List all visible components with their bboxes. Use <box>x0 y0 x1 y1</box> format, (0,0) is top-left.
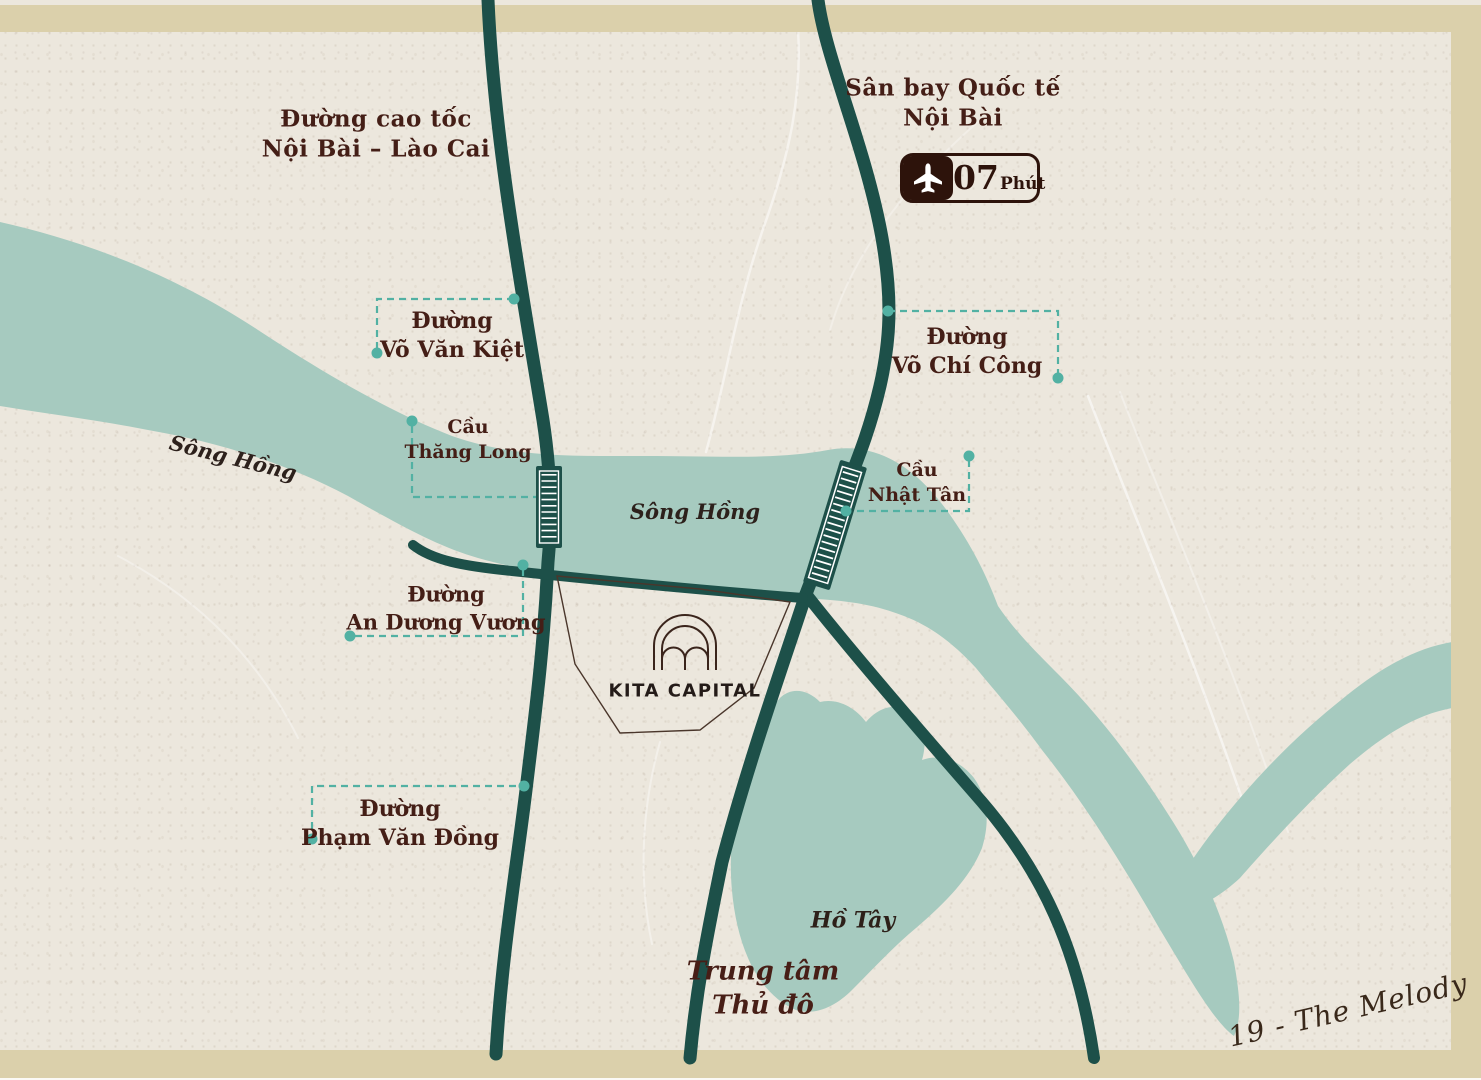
river-label-center: Sông Hồng <box>630 498 760 526</box>
bridge-label-nhat-tan: Cầu Nhật Tân <box>868 458 966 508</box>
kita-capital-label: KITA CAPITAL <box>608 681 761 702</box>
city-center-line1: Trung tâm <box>687 955 840 989</box>
nhat-tan-line1: Cầu <box>868 458 966 483</box>
road-label-pham-van-dong: Đường Phạm Văn Đồng <box>301 795 499 853</box>
kita-capital-logo-icon <box>654 615 716 670</box>
city-center-line2: Thủ đô <box>687 989 840 1023</box>
map-graphics <box>0 0 1481 1080</box>
travel-time-text: 07 Phút <box>953 161 1045 196</box>
kita-plot-outline <box>557 576 790 733</box>
vo-chi-cong-line2: Võ Chí Công <box>892 352 1042 381</box>
road-label-vo-chi-cong: Đường Võ Chí Công <box>892 323 1042 381</box>
road-label-an-duong-vuong: Đường An Dương Vương <box>346 580 545 635</box>
map-canvas: Đường cao tốc Nội Bài – Lào Cai Sân bay … <box>0 0 1481 1080</box>
airport-label-line2: Nội Bài <box>845 104 1060 134</box>
bridge-thang-long-icon <box>536 466 562 548</box>
expressway-label: Đường cao tốc Nội Bài – Lào Cai <box>262 105 491 166</box>
road-label-vo-van-kiet: Đường Võ Văn Kiệt <box>380 307 524 365</box>
river-branch-shape <box>1160 642 1452 916</box>
lake-label-ho-tay: Hồ Tây <box>811 906 895 935</box>
city-center-label: Trung tâm Thủ đô <box>687 955 840 1024</box>
an-duong-vuong-line1: Đường <box>346 580 545 608</box>
nhat-tan-line2: Nhật Tân <box>868 483 966 508</box>
travel-time-value: 07 <box>953 161 999 194</box>
thang-long-line1: Cầu <box>404 415 531 440</box>
airport-travel-time-badge: 07 Phút <box>900 153 1040 203</box>
airplane-icon <box>903 156 953 200</box>
travel-time-unit: Phút <box>1000 176 1045 193</box>
bridge-label-thang-long: Cầu Thăng Long <box>404 415 531 465</box>
expressway-label-line1: Đường cao tốc <box>262 105 491 135</box>
vo-chi-cong-line1: Đường <box>892 323 1042 352</box>
an-duong-vuong-line2: An Dương Vương <box>346 608 545 636</box>
airport-label: Sân bay Quốc tế Nội Bài <box>845 74 1060 135</box>
thang-long-line2: Thăng Long <box>404 440 531 465</box>
pham-van-dong-line1: Đường <box>301 795 499 824</box>
expressway-label-line2: Nội Bài – Lào Cai <box>262 135 491 165</box>
airport-label-line1: Sân bay Quốc tế <box>845 74 1060 104</box>
pham-van-dong-line2: Phạm Văn Đồng <box>301 824 499 853</box>
vo-van-kiet-line1: Đường <box>380 307 524 336</box>
vo-van-kiet-line2: Võ Văn Kiệt <box>380 336 524 365</box>
